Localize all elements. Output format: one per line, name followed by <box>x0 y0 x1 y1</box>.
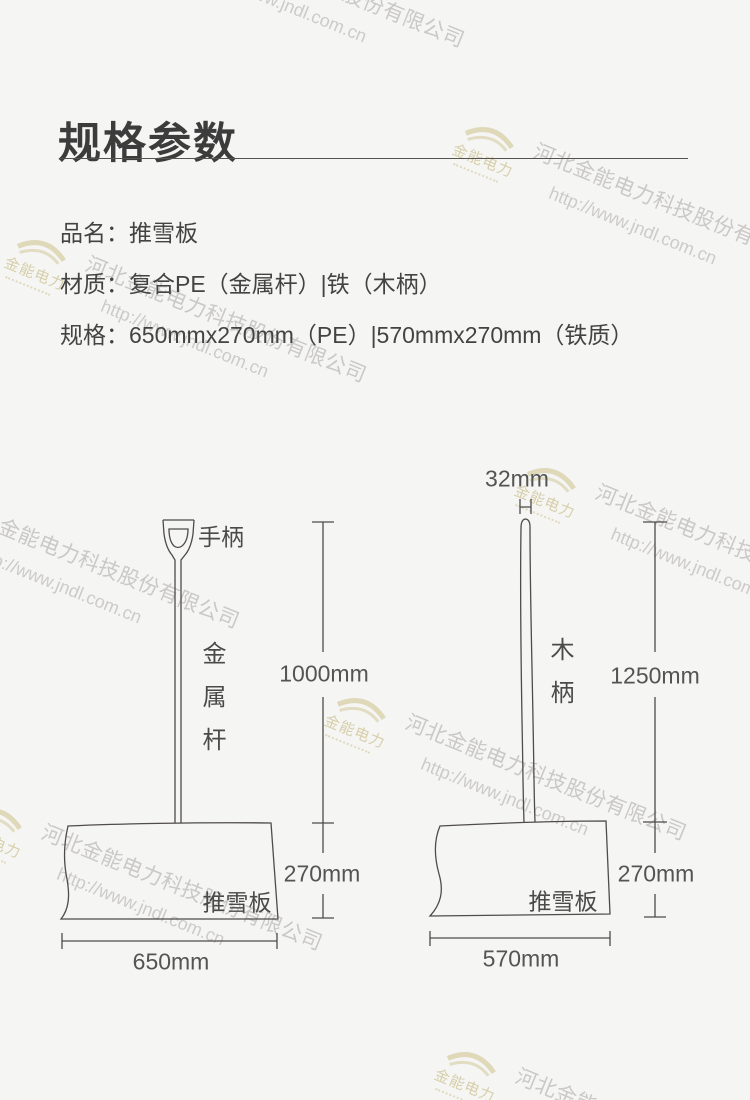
product-spec-page: 金能电力 河北金能电力科技股份有限公司 http://www.jndl.com.… <box>0 0 750 1100</box>
left-shaft-label: 金属杆 <box>199 641 223 770</box>
left-shovel-handle-hole <box>169 529 188 548</box>
right-top-width-bracket <box>520 499 531 514</box>
right-shovel-pole <box>521 519 535 822</box>
right-board-label: 推雪板 <box>529 891 598 914</box>
right-width-dimension-line <box>430 931 610 946</box>
left-board-height-dim: 270mm <box>284 863 361 886</box>
left-width-dimension-line <box>62 933 277 949</box>
left-height-dimension-line <box>312 522 334 918</box>
right-shaft-label: 木柄 <box>547 637 571 723</box>
left-handle-label: 手柄 <box>198 526 244 549</box>
left-shaft-height-dim: 1000mm <box>279 663 368 686</box>
shovel-diagrams <box>0 0 750 1100</box>
right-board-width-dim: 570mm <box>483 948 560 971</box>
right-shaft-height-dim: 1250mm <box>610 665 699 688</box>
right-height-dimension-line <box>643 522 667 917</box>
left-shovel-handle <box>163 520 194 823</box>
left-board-width-dim: 650mm <box>133 951 210 974</box>
right-top-width-dim: 32mm <box>485 468 549 491</box>
right-board-height-dim: 270mm <box>618 863 695 886</box>
left-board-label: 推雪板 <box>203 892 272 915</box>
